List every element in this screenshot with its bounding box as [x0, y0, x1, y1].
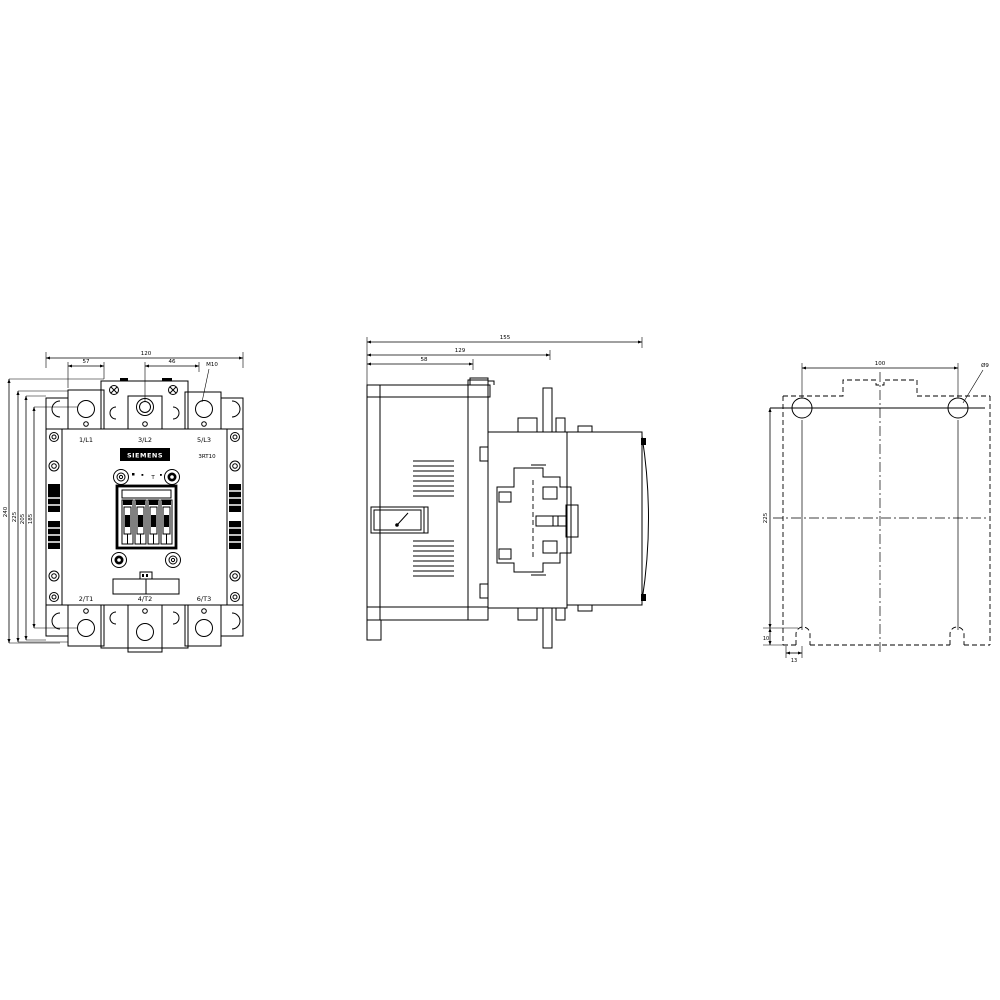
- terminal-lug-L1: [68, 390, 104, 429]
- dim-label: 225: [763, 512, 769, 523]
- terminal-lug-T3: [185, 605, 221, 646]
- drawing-canvas: 1/L1 3/L2 5/L3 SIEMENS 3RT10 T: [0, 0, 1000, 1000]
- bottom-notch: [950, 627, 964, 645]
- technical-drawing: 1/L1 3/L2 5/L3 SIEMENS 3RT10 T: [0, 0, 1000, 1000]
- cross-screw-icon: [110, 386, 178, 395]
- rear-dimensions: 100 Ø9 225 10 13: [763, 361, 990, 664]
- coil-mark: T: [150, 475, 155, 481]
- mid-column: [468, 380, 488, 620]
- coil-terminal-block: [117, 486, 176, 548]
- side-dimensions: 155 129 58: [367, 335, 642, 388]
- centerlines: [773, 372, 988, 655]
- clip-cutout: [173, 407, 179, 419]
- dim-label: 58: [421, 357, 428, 363]
- dim-label: 129: [455, 348, 466, 354]
- terminal-lug-T1: [68, 605, 104, 646]
- leader-label: Ø9: [981, 362, 989, 369]
- coil-clamp: [148, 500, 159, 544]
- front-view: 1/L1 3/L2 5/L3 SIEMENS 3RT10 T: [3, 351, 243, 652]
- dim-label: 10: [763, 636, 769, 642]
- terminal-label: 3/L2: [138, 436, 152, 444]
- dim-label: 100: [875, 361, 886, 367]
- mounting-holes: [770, 398, 985, 630]
- dim-label: 240: [3, 506, 9, 517]
- dim-label: 46: [169, 359, 176, 365]
- bottom-notch: [796, 627, 810, 645]
- screwdriver-arrow-icon: [395, 513, 408, 527]
- dim-label: 120: [141, 351, 152, 357]
- arc-chute-housing: [367, 378, 494, 640]
- clip-cutout: [110, 407, 116, 419]
- dim-label: 225: [12, 511, 18, 522]
- terminal-lug-T2: [128, 605, 162, 652]
- terminal-label: 6/T3: [197, 595, 211, 603]
- side-view: 155 129 58: [367, 335, 649, 648]
- dim-label: 185: [28, 513, 34, 524]
- leader-label: M10: [206, 362, 218, 368]
- rear-section: [567, 426, 649, 611]
- brand-logo-text: SIEMENS: [127, 452, 163, 460]
- din-latch-profile: [497, 468, 571, 572]
- left-ear: [46, 605, 68, 636]
- terminal-label: 1/L1: [79, 436, 93, 444]
- terminal-label: 2/T1: [79, 595, 93, 603]
- left-ear: [46, 398, 68, 429]
- stepped-top-edge: [783, 380, 990, 396]
- coil-clamp: [135, 500, 146, 544]
- right-ear: [221, 398, 243, 429]
- dim-label: 155: [500, 335, 511, 341]
- mounting-outline: [783, 380, 990, 645]
- dim-label: 205: [20, 513, 26, 524]
- coil-clamp: [122, 500, 133, 544]
- clip-cutout: [110, 612, 116, 624]
- terminal-label: 5/L3: [197, 436, 211, 444]
- bottom-terminals: [46, 605, 243, 652]
- coil-screw-icon: [114, 470, 180, 485]
- coil-clamp: [161, 500, 172, 544]
- center-block: [488, 432, 578, 608]
- rear-view: 100 Ø9 225 10 13: [763, 361, 990, 664]
- top-terminals: [46, 378, 243, 429]
- vent-slots: [413, 461, 454, 576]
- model-text: 3RT10: [198, 454, 216, 460]
- terminal-label: 4/T2: [138, 595, 152, 603]
- dim-label: 57: [83, 359, 90, 365]
- dim-label: 13: [791, 658, 797, 664]
- clip-cutout: [173, 612, 179, 624]
- lower-screw-icon: [112, 553, 181, 568]
